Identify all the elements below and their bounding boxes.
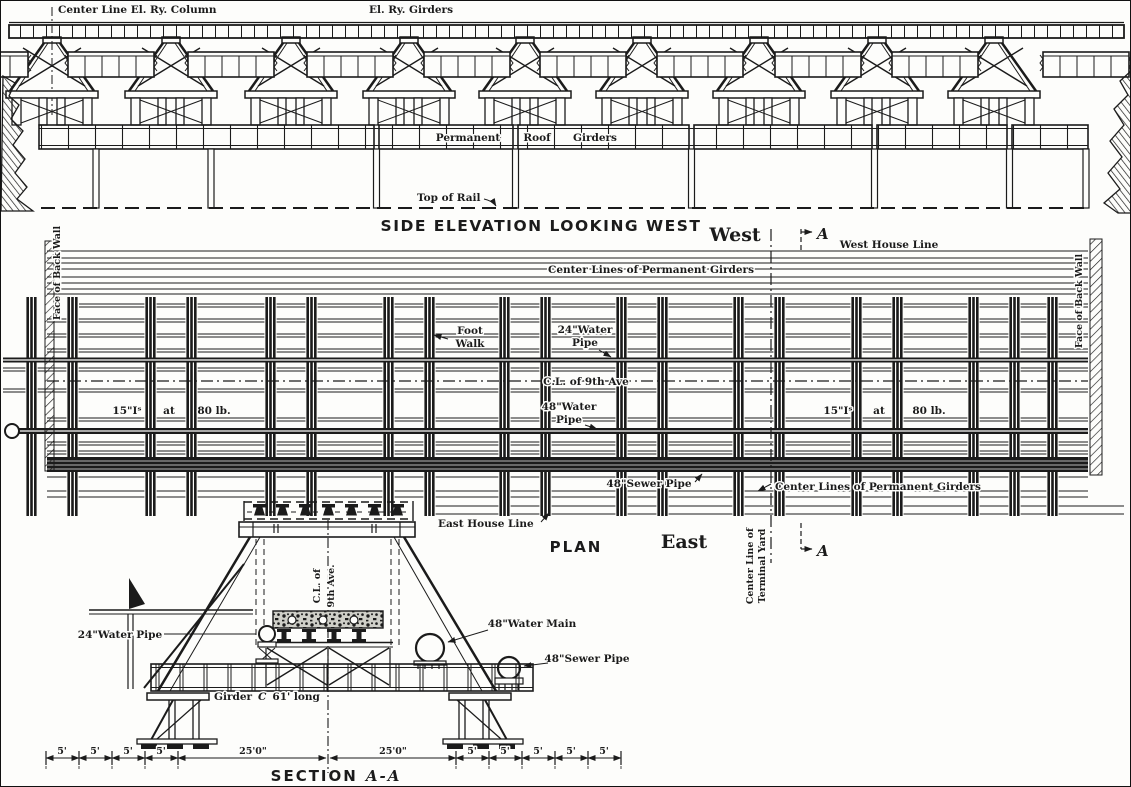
trestle-bent-right xyxy=(443,693,523,749)
dimension-label: 5' xyxy=(599,746,609,757)
girder-length-label: GirderC61' long xyxy=(214,691,321,703)
west-house-line-label: West House Line xyxy=(839,239,939,251)
dimension-label: 5' xyxy=(90,746,100,757)
el-ry-girders-label: El. Ry. Girders xyxy=(369,4,453,16)
a-frame-tower xyxy=(596,37,688,125)
section-marker-a-top: A xyxy=(801,225,829,253)
dimension-label: 25'0" xyxy=(379,746,407,757)
dimension-label: 5' xyxy=(123,746,133,757)
water-pipe-24-section-label: 24"Water Pipe xyxy=(78,629,163,641)
center-line-column-label: Center Line El. Ry. Column xyxy=(58,4,217,16)
dimension-line: 5' 5' 5' 5' 25'0" 25'0" 5' 5' 5' 5' 5' xyxy=(46,746,621,769)
cap-girder xyxy=(239,522,415,537)
plan-view: West East xyxy=(3,224,1124,604)
trestle-bent-left xyxy=(137,693,217,749)
section-aa-view: C.L. of 9th Ave. 24"Water Pipe 48" xyxy=(46,501,630,785)
face-of-back-wall-right-label: Face of Back Wall xyxy=(1074,253,1085,348)
cl-9th-ave-section-label-2: 9th Ave. xyxy=(326,564,337,607)
deck-girder xyxy=(151,664,533,691)
foot-walk-label-2: Walk xyxy=(455,338,486,350)
sewer-pipe-48-band xyxy=(47,457,1088,472)
top-of-rail-label: Top of Rail xyxy=(417,192,481,204)
east-label: East xyxy=(661,531,707,553)
dimension-label: 5' xyxy=(533,746,543,757)
cl-9th-ave-label: C.L. of 9th Ave xyxy=(543,376,629,388)
sewer-pipe-48-leader xyxy=(695,474,702,482)
cl-9th-ave-section-label-1: C.L. of xyxy=(312,568,323,603)
a-frame-tower xyxy=(363,37,455,125)
east-house-line-label: East House Line xyxy=(438,518,534,530)
drawing-canvas: Center Line El. Ry. Column El. Ry. Girde… xyxy=(1,1,1131,787)
side-elevation-view: Center Line El. Ry. Column El. Ry. Girde… xyxy=(1,4,1131,235)
ibeam-right-at-label: at xyxy=(873,405,885,417)
a-frame-tower xyxy=(125,37,217,125)
permanent-roof-girder-band: Permanent Roof Girders xyxy=(39,125,1088,149)
dimension-label: 5' xyxy=(566,746,576,757)
engineering-drawing-sheet: Center Line El. Ry. Column El. Ry. Girde… xyxy=(0,0,1131,787)
terminal-yard-label-2: Terminal Yard xyxy=(757,528,768,603)
terminal-yard-label-1: Center Line of xyxy=(745,527,756,604)
ibeam-left-at-label: at xyxy=(163,405,175,417)
suspended-girder-sections xyxy=(1,52,1131,77)
section-marker-a-bottom: A xyxy=(801,523,829,560)
el-ry-girder-band xyxy=(9,23,1124,39)
ibeam-left-weight-label: 80 lb. xyxy=(197,405,230,417)
pipe-bell-end xyxy=(5,424,19,438)
ibeam-right-weight-label: 80 lb. xyxy=(912,405,945,417)
section-letter-top: A xyxy=(815,225,829,243)
foot-walk-label: Foot xyxy=(457,325,483,337)
a-frame-tower xyxy=(713,37,805,125)
top-of-rail-leader xyxy=(484,199,496,206)
a-frame-towers xyxy=(6,37,1040,125)
water-pipe-48-label-2: Pipe xyxy=(556,414,582,426)
a-frame-tower xyxy=(948,37,1040,125)
face-of-back-wall-left-label: Face of Back Wall xyxy=(52,225,63,320)
dimension-label: 5' xyxy=(467,746,477,757)
a-frame-tower xyxy=(245,37,337,125)
section-letter-bottom: A xyxy=(815,542,829,560)
water-main-48-leader xyxy=(448,630,488,642)
a-frame-tower xyxy=(831,37,923,125)
west-label: West xyxy=(708,224,761,246)
center-lines-bottom-leader xyxy=(758,484,771,491)
permanent-label: Permanent xyxy=(436,132,501,144)
roof-label: Roof xyxy=(523,132,552,144)
rail-pedestals xyxy=(277,629,366,642)
center-lines-bottom-label: Center Lines of Permanent Girders xyxy=(775,481,981,493)
center-lines-top-label: Center Lines of Permanent Girders xyxy=(548,264,754,276)
sewer-pipe-48-section-label: 48"Sewer Pipe xyxy=(544,653,629,665)
girders-label: Girders xyxy=(573,132,617,144)
ibeam-left-size-label: 15"Iˢ xyxy=(112,405,141,417)
ballast-bed xyxy=(273,611,383,628)
side-elevation-title: SIDE ELEVATION LOOKING WEST xyxy=(381,217,702,235)
plan-title: PLAN xyxy=(550,538,603,556)
dimension-label: 25'0" xyxy=(239,746,267,757)
ibeam-right-size-label: 15"Iˢ xyxy=(823,405,852,417)
back-wall-right xyxy=(1090,239,1102,475)
water-main-48-label: 48"Water Main xyxy=(488,618,577,630)
water-pipe-24-leader xyxy=(599,350,611,357)
water-pipe-48-label: 48"Water xyxy=(542,401,597,413)
section-title: SECTIONA-A xyxy=(271,767,402,785)
dimension-label: 5' xyxy=(500,746,510,757)
support-columns xyxy=(93,149,1089,208)
sewer-pipe-48-plan-label: 48"Sewer Pipe xyxy=(606,478,691,490)
water-pipe-24-circle xyxy=(256,626,278,663)
dimension-label: 5' xyxy=(57,746,67,757)
dimension-label: 5' xyxy=(156,746,166,757)
water-pipe-24-label: 24"Water xyxy=(558,324,613,336)
water-pipe-24-label-2: Pipe xyxy=(572,337,598,349)
a-frame-tower xyxy=(479,37,571,125)
rubble-bank-right xyxy=(1104,71,1131,213)
